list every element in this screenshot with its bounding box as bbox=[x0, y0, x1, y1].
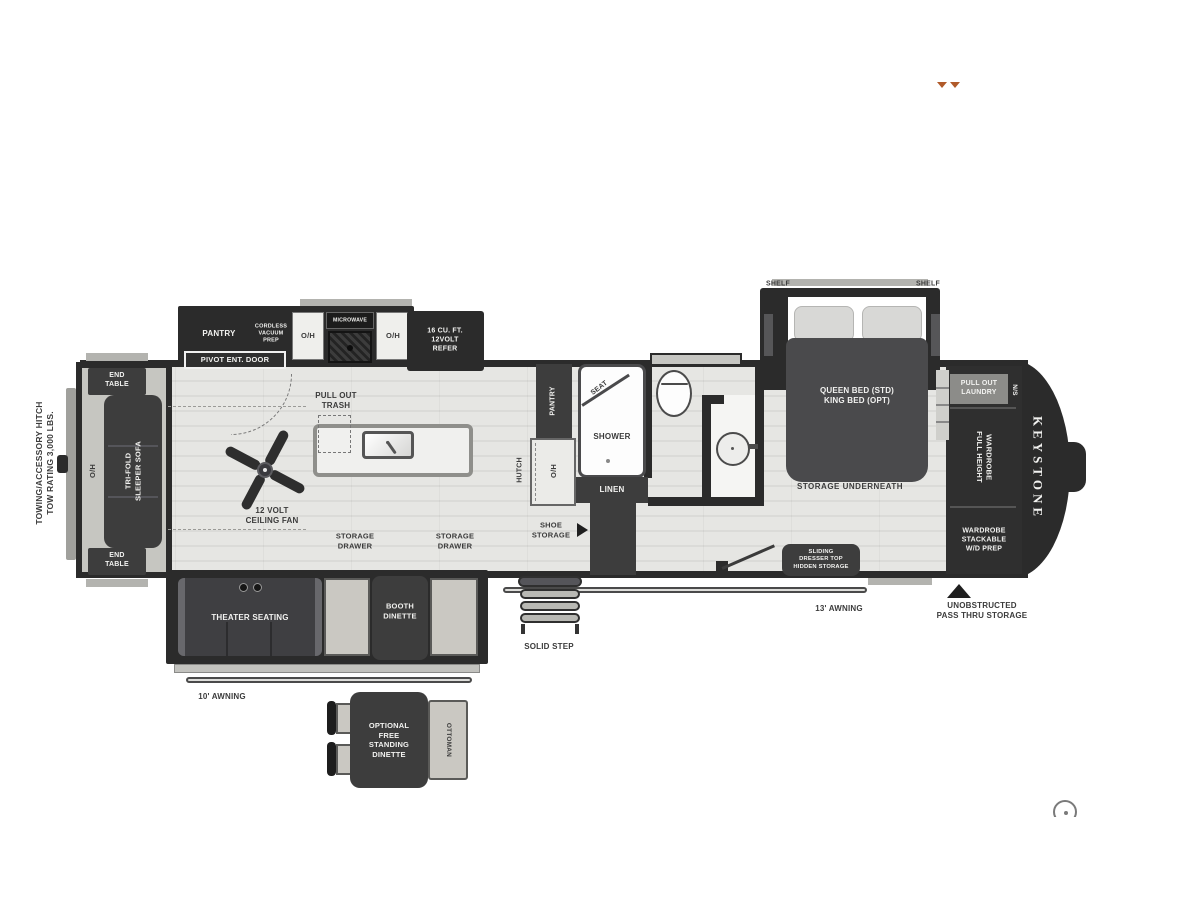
sliding-dresser-label: SLIDING DRESSER TOP HIDDEN STORAGE bbox=[793, 549, 848, 571]
tow-rating-label: TOWING/ACCESSORY HITCH TOW RATING 3,000 … bbox=[34, 401, 56, 524]
storage-drawer-left-label: STORAGE DRAWER bbox=[336, 531, 374, 550]
theater-seating-label: THEATER SEATING bbox=[211, 613, 288, 623]
bathroom-sink-dot bbox=[731, 447, 734, 450]
end-table-top-label: END TABLE bbox=[105, 372, 129, 390]
bed-label: QUEEN BED (STD) KING BED (OPT) bbox=[820, 386, 894, 406]
carousel-arrow-left-icon[interactable] bbox=[937, 82, 947, 88]
awning-10ft-label: 10' AWNING bbox=[198, 692, 246, 702]
overhead-left-label: O/H bbox=[301, 331, 315, 341]
nightstand-right bbox=[931, 314, 940, 356]
sofa-label: TRI-FOLD SLEEPER SOFA bbox=[123, 441, 142, 501]
pillow-right bbox=[862, 306, 922, 342]
rear-bumper bbox=[66, 388, 76, 560]
pillow-left bbox=[794, 306, 854, 342]
pull-out-laundry-label: PULL OUT LAUNDRY bbox=[961, 380, 997, 398]
pass-thru-arrow-icon bbox=[947, 584, 971, 598]
bed-slide-fascia bbox=[772, 279, 928, 286]
rear-slide-fascia-top bbox=[86, 353, 148, 361]
bottom-right-fascia bbox=[868, 578, 932, 585]
storage-drawer-right-label: STORAGE DRAWER bbox=[436, 531, 474, 550]
brand-logo: KEYSTONE bbox=[1029, 416, 1046, 520]
end-table-bottom-label: END TABLE bbox=[105, 552, 129, 570]
accessory-hitch-icon bbox=[57, 455, 68, 473]
ns-label: N/S bbox=[1010, 384, 1018, 395]
bathroom-window bbox=[650, 353, 742, 366]
linen-label: LINEN bbox=[600, 485, 625, 495]
solid-step-2 bbox=[520, 589, 580, 599]
toilet-seat-line bbox=[661, 383, 688, 385]
shower-drain-dot bbox=[606, 459, 610, 463]
cup-holder-right-icon bbox=[253, 583, 262, 592]
step-leg-left bbox=[521, 624, 525, 634]
shower-label: SHOWER bbox=[593, 432, 630, 442]
bathroom-faucet-icon bbox=[749, 444, 758, 449]
vanity-wall bbox=[702, 395, 711, 503]
vacuum-prep-label: CORDLESS VACUUM PREP bbox=[255, 323, 287, 344]
shoe-storage-arrow-icon bbox=[577, 523, 588, 537]
nightstand-left bbox=[764, 314, 773, 356]
hutch-label: HUTCH bbox=[517, 457, 526, 483]
booth-bench-left bbox=[324, 578, 370, 656]
range-cooktop-icon bbox=[328, 331, 372, 363]
ceiling-fan-label: 12 VOLT CEILING FAN bbox=[246, 506, 299, 526]
cup-holder-left-icon bbox=[239, 583, 248, 592]
pass-thru-label: UNOBSTRUCTED PASS THRU STORAGE bbox=[937, 601, 1028, 621]
bathroom-wall-right bbox=[755, 366, 764, 506]
sofa-overhead-label: O/H bbox=[88, 464, 98, 478]
shelf-left-label: SHELF bbox=[766, 281, 790, 290]
bathroom-wall-bottom bbox=[648, 497, 764, 506]
awning-13ft-label: 13' AWNING bbox=[815, 604, 863, 614]
solid-step-1 bbox=[518, 576, 582, 587]
shelf-right-label: SHELF bbox=[916, 281, 940, 290]
toilet-icon bbox=[656, 370, 692, 417]
step-leg-right bbox=[575, 624, 579, 634]
full-height-wardrobe-label: FULL HEIGHT WARDROBE bbox=[974, 431, 993, 483]
pivot-entry-door-label: PIVOT ENT. DOOR bbox=[201, 355, 269, 365]
hall-overhead-label: O/H bbox=[549, 464, 559, 478]
shoe-storage-label: SHOE STORAGE bbox=[532, 520, 570, 539]
free-standing-dinette-label: OPTIONAL FREE STANDING DINETTE bbox=[369, 721, 409, 759]
solid-step-label: SOLID STEP bbox=[524, 642, 574, 652]
bedroom-steps bbox=[936, 370, 949, 440]
ottoman-label: OTTOMAN bbox=[444, 723, 452, 757]
overhead-right-label: O/H bbox=[386, 331, 400, 341]
shower bbox=[578, 364, 646, 478]
info-icon[interactable] bbox=[1052, 799, 1082, 817]
kitchen-pantry-label: PANTRY bbox=[202, 329, 235, 339]
rv-floorplan: TOWING/ACCESSORY HITCH TOW RATING 3,000 … bbox=[0, 0, 1200, 900]
bottom-slide-fascia bbox=[174, 664, 480, 673]
solid-step-3 bbox=[520, 601, 580, 611]
carousel-arrow-right-icon[interactable] bbox=[950, 82, 960, 88]
dinette-chair-back-2 bbox=[327, 742, 336, 776]
kingpin bbox=[1060, 442, 1086, 492]
entry-corridor bbox=[590, 503, 636, 575]
booth-dinette-label: BOOTH DINETTE bbox=[383, 601, 416, 620]
dinette-chair-back-1 bbox=[327, 701, 336, 735]
solid-step-4 bbox=[520, 613, 580, 623]
pull-out-trash-label: PULL OUT TRASH bbox=[315, 391, 356, 411]
microwave-label: MICROWAVE bbox=[333, 318, 367, 325]
bed bbox=[786, 338, 928, 482]
vanity-wall-stub bbox=[702, 395, 724, 404]
refrigerator-label: 16 CU. FT. 12VOLT REFER bbox=[427, 328, 462, 355]
trash-pullout-outline bbox=[318, 415, 351, 453]
hall-pantry-label: PANTRY bbox=[550, 386, 559, 415]
booth-bench-right bbox=[430, 578, 478, 656]
slide-guide-dash-bottom bbox=[168, 529, 306, 530]
awning-10ft bbox=[186, 677, 472, 683]
rear-slide-fascia-bottom bbox=[86, 579, 148, 587]
under-bed-storage-label: STORAGE UNDERNEATH bbox=[797, 482, 903, 492]
wardrobe-wd-prep-label: WARDROBE STACKABLE W/D PREP bbox=[962, 528, 1006, 555]
